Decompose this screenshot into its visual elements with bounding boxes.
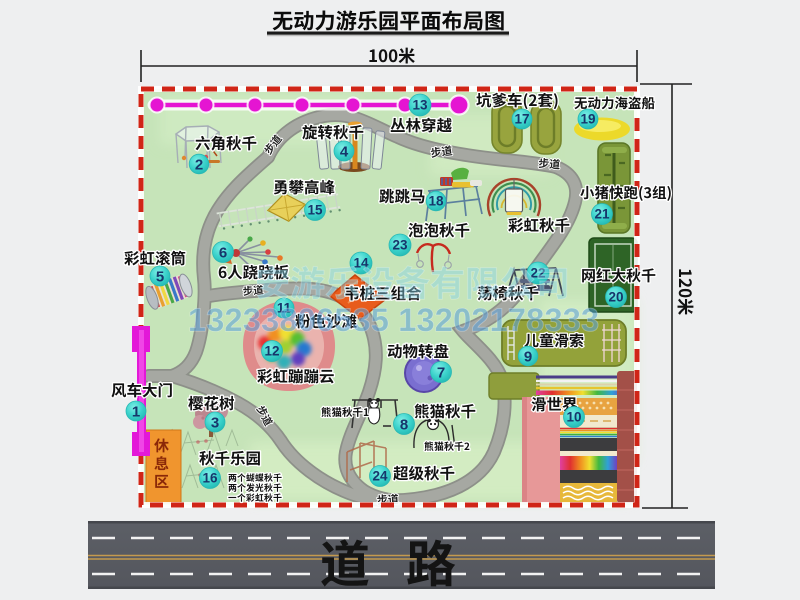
svg-text:8: 8	[400, 416, 408, 433]
svg-text:5: 5	[156, 268, 164, 285]
svg-text:3: 3	[211, 414, 219, 431]
svg-text:1: 1	[132, 403, 140, 420]
svg-text:21: 21	[594, 207, 610, 222]
svg-text:16: 16	[202, 471, 218, 486]
svg-text:23: 23	[392, 238, 408, 253]
svg-text:24: 24	[372, 469, 388, 484]
svg-text:2: 2	[195, 156, 203, 173]
svg-text:10: 10	[566, 410, 581, 425]
svg-text:9: 9	[524, 348, 532, 365]
svg-text:4: 4	[340, 143, 349, 160]
svg-text:6: 6	[219, 244, 227, 261]
svg-text:20: 20	[608, 290, 623, 305]
svg-text:7: 7	[437, 364, 445, 381]
svg-text:13233806535 13202178333: 13233806535 13202178333	[188, 302, 599, 338]
svg-text:17: 17	[514, 112, 529, 127]
svg-text:12: 12	[264, 344, 279, 359]
svg-text:15: 15	[307, 203, 323, 218]
svg-text:18: 18	[428, 194, 444, 209]
svg-text:19: 19	[580, 112, 595, 127]
svg-text:13: 13	[412, 98, 428, 113]
